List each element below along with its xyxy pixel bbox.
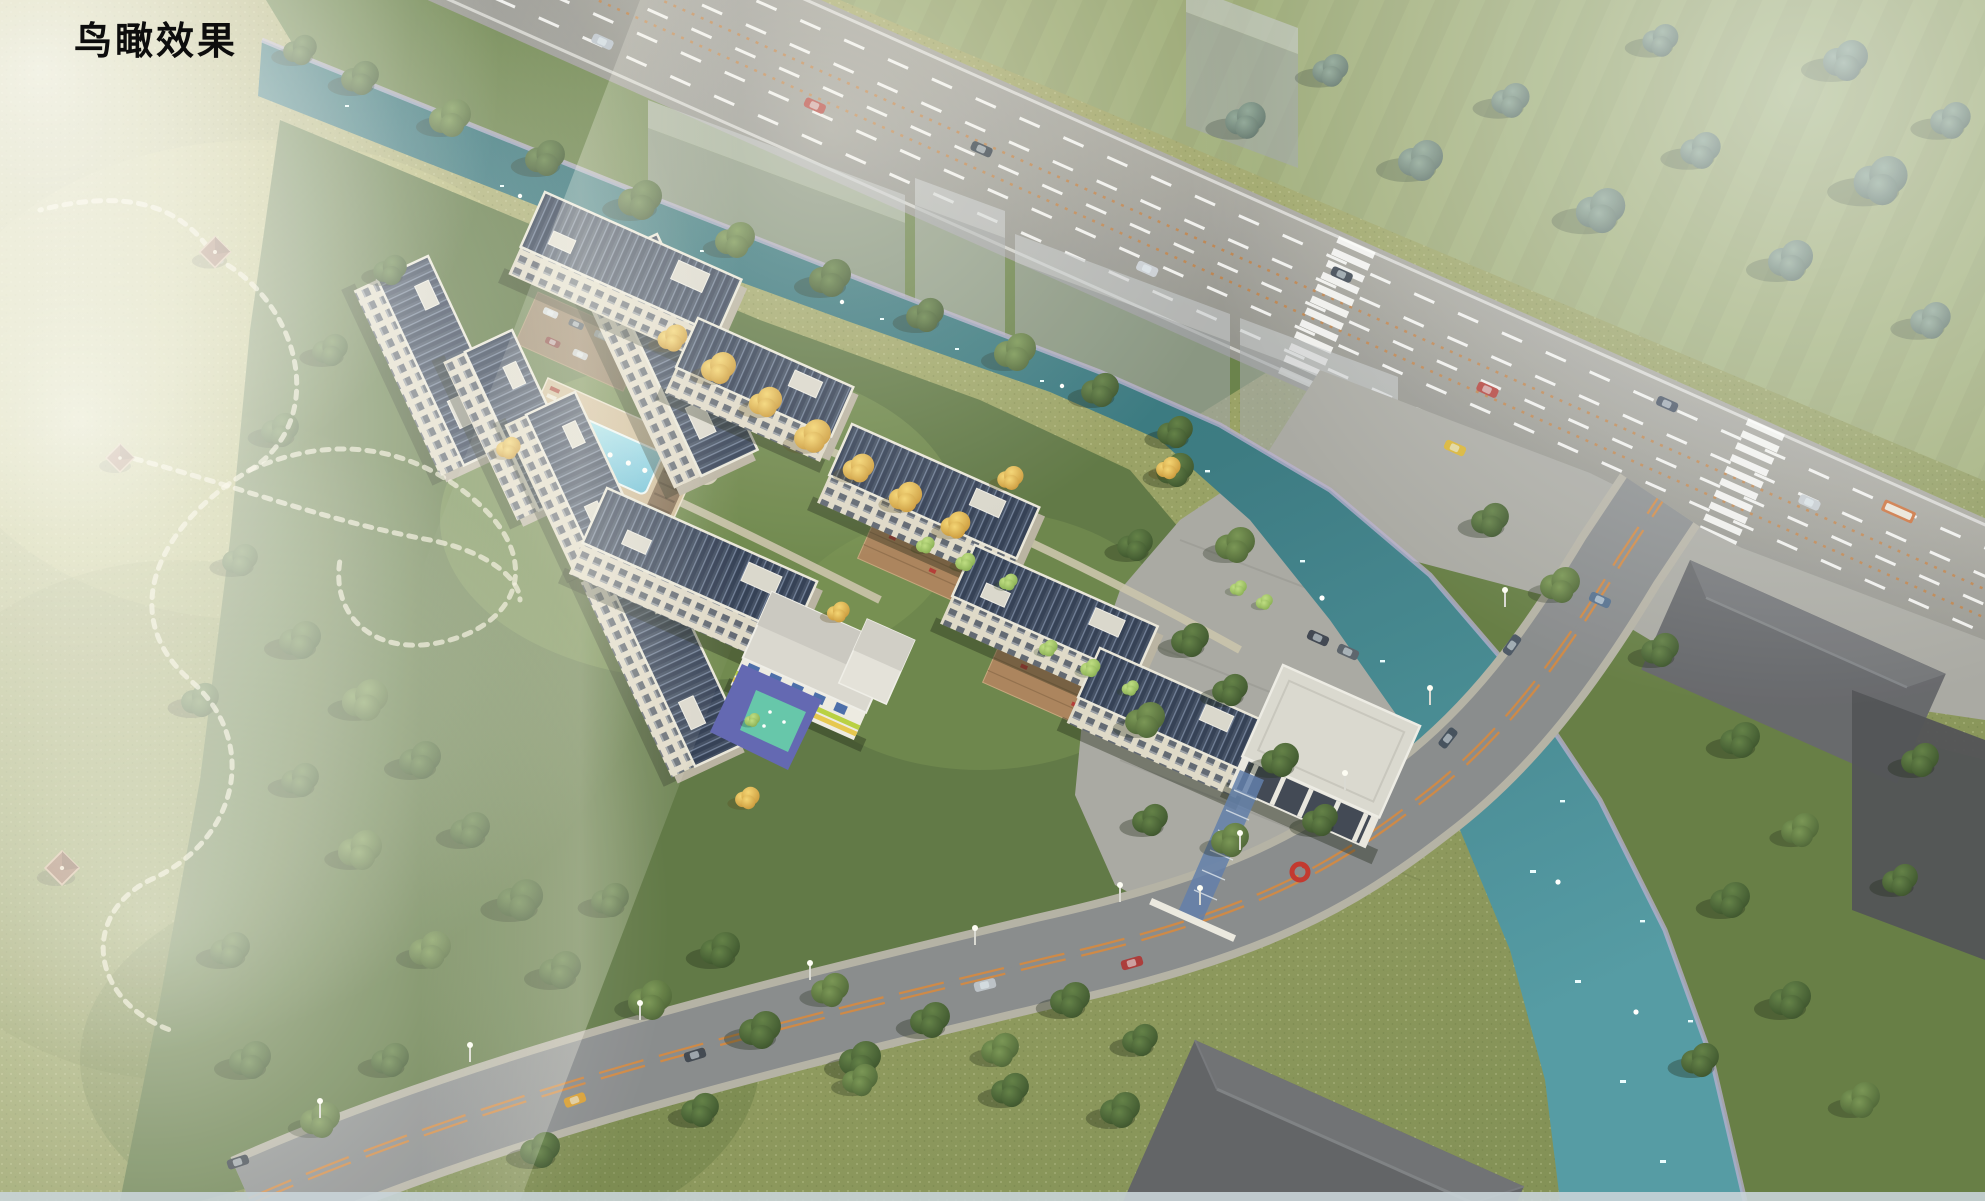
haze-overlays — [0, 0, 1985, 1201]
bottom-edge-strip — [0, 1192, 1985, 1201]
rendering-page: 鸟瞰效果 — [0, 0, 1985, 1201]
page-title: 鸟瞰效果 — [74, 10, 238, 65]
birdseye-rendering — [0, 0, 1985, 1201]
